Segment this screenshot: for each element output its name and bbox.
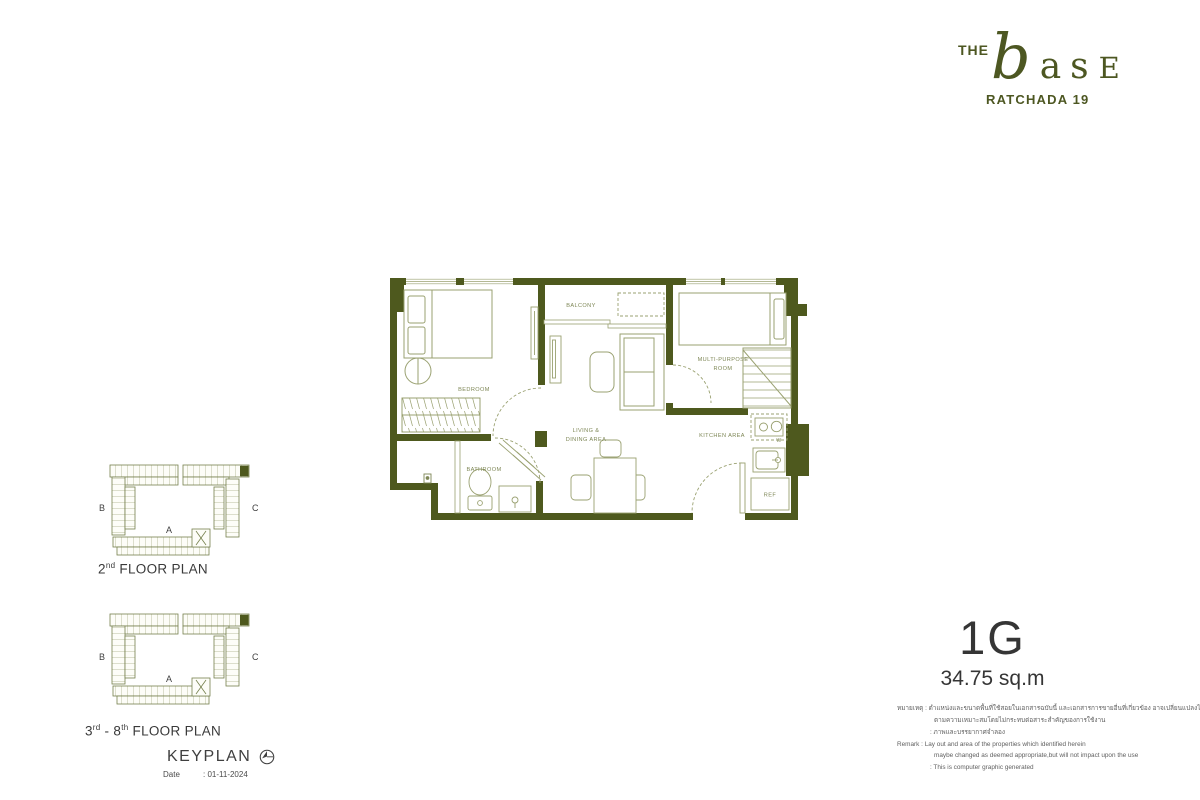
keyplan-3rd-8th-caption: 3rd - 8th FLOOR PLAN [68,723,238,739]
label-bathroom: BATHROOM [466,467,501,473]
date-row: Date : 01-11-2024 [163,770,248,779]
lounge-chair [590,352,614,392]
keyplan-title-text: KEYPLAN [167,748,251,766]
unit-code: 1G [900,612,1085,664]
water-heater [424,474,431,483]
label-living-2: DINING AREA [566,437,606,443]
wing-c-label: C [252,503,258,513]
brand-wordmark: THE b a s E [958,26,1138,88]
label-living-1: LIVING & [573,428,600,434]
stove [751,414,787,440]
remark-block: หมายเหตุ : ตำแหน่งและขนาดพื้นที่ใช้สอยใน… [897,703,1189,774]
remark-en-3: : This is computer graphic generated [897,762,1189,774]
brand-logo: THE b a s E RATCHADA 19 [958,26,1138,107]
label-multi-2: ROOM [713,366,732,372]
caption-2-rest: FLOOR PLAN [115,562,208,577]
brand-letter-a: a [1040,46,1061,87]
label-kitchen: KITCHEN AREA [699,433,745,439]
brand-letter-e: E [1099,51,1120,85]
remark-th-2: ตามความเหมาะสมโดยไม่กระทบต่อสาระสำคัญของ… [897,715,1189,727]
wing-a-label: A [166,525,172,535]
caption-2: 2 [98,562,106,577]
bedroom-bed [404,290,492,358]
date-value: : 01-11-2024 [203,770,248,779]
balcony-ac-unit [618,293,664,316]
bathroom-sink [499,486,531,512]
caption-3: 3 [85,724,93,739]
multi-purpose-bed [679,293,786,345]
date-label: Date [163,770,203,779]
bedroom-shelf [531,307,538,359]
entrance-door-leaf [740,463,745,513]
remark-th-1: หมายเหตุ : ตำแหน่งและขนาดพื้นที่ใช้สอยใน… [897,703,1189,715]
keyplan-2nd-floor: B C A [92,461,258,561]
floor-plan: BEDROOM BALCONY LIVING & DINING AREA MUL… [386,274,812,528]
wing-c-label: C [252,652,258,662]
dining-set [571,440,645,513]
sliding-door [544,320,666,328]
multi-purpose-wardrobe [743,348,791,408]
wing-b-label: B [99,503,105,513]
keyplan-2nd-caption: 2nd FLOOR PLAN [68,561,238,577]
label-ref: REF [764,493,777,499]
unit-area: 34.75 sq.m [900,667,1085,691]
label-balcony: BALCONY [566,303,596,309]
label-bedroom: BEDROOM [458,387,490,393]
caption-38-rest: FLOOR PLAN [128,724,221,739]
brand-the: THE [958,42,989,58]
caption-8: - 8 [100,724,121,739]
toilet [468,469,492,510]
remark-en-1: Remark : Lay out and area of the propert… [897,739,1189,751]
caption-2-sup: nd [106,561,116,570]
wing-b-label: B [99,652,105,662]
bathroom-partition [455,441,460,513]
remark-th-3: : ภาพและบรรยากาศจำลอง [897,727,1189,739]
compass-icon [258,748,276,766]
wing-a-label: A [166,674,172,684]
brand-letter-s: s [1070,46,1088,87]
unit-info: 1G 34.75 sq.m [900,612,1085,691]
remark-en-2: maybe changed as deemed appropriate,but … [897,750,1189,762]
bedroom-side-table [405,358,431,384]
sofa [620,334,664,410]
keyplan-header: KEYPLAN [167,748,276,766]
brand-letter-b: b [991,26,1031,88]
keyplan-3rd-8th-floor: B C A [92,610,258,710]
bedroom-wardrobe [402,398,480,432]
label-w: W [776,438,781,444]
brand-subtitle: RATCHADA 19 [986,92,1138,107]
kitchen-sink [753,448,785,472]
label-multi-1: MULTI-PURPOSE [698,357,749,363]
tv-console [550,336,561,383]
